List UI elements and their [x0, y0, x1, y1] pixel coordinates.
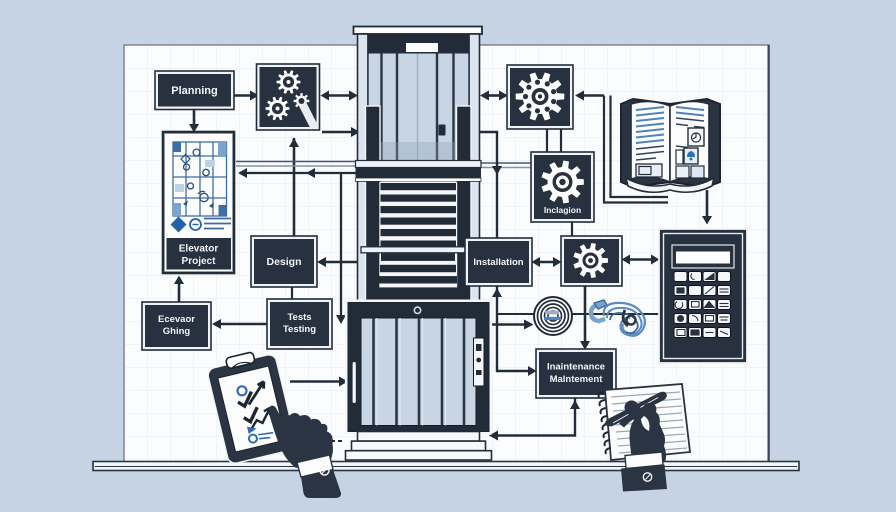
svg-text:Installation: Installation: [473, 257, 523, 268]
svg-text:Testing: Testing: [283, 324, 316, 335]
svg-text:Inclagion: Inclagion: [544, 205, 581, 215]
svg-text:Inaintenance: Inaintenance: [547, 362, 605, 373]
svg-text:Tests: Tests: [287, 312, 311, 323]
svg-text:Project: Project: [182, 256, 217, 267]
svg-text:Malntement: Malntement: [550, 374, 604, 385]
svg-text:Ghing: Ghing: [163, 326, 191, 337]
svg-text:Design: Design: [266, 256, 301, 268]
svg-text:Planning: Planning: [171, 85, 217, 97]
svg-text:Elevator: Elevator: [179, 244, 219, 255]
svg-text:Ecevaor: Ecevaor: [158, 314, 195, 325]
